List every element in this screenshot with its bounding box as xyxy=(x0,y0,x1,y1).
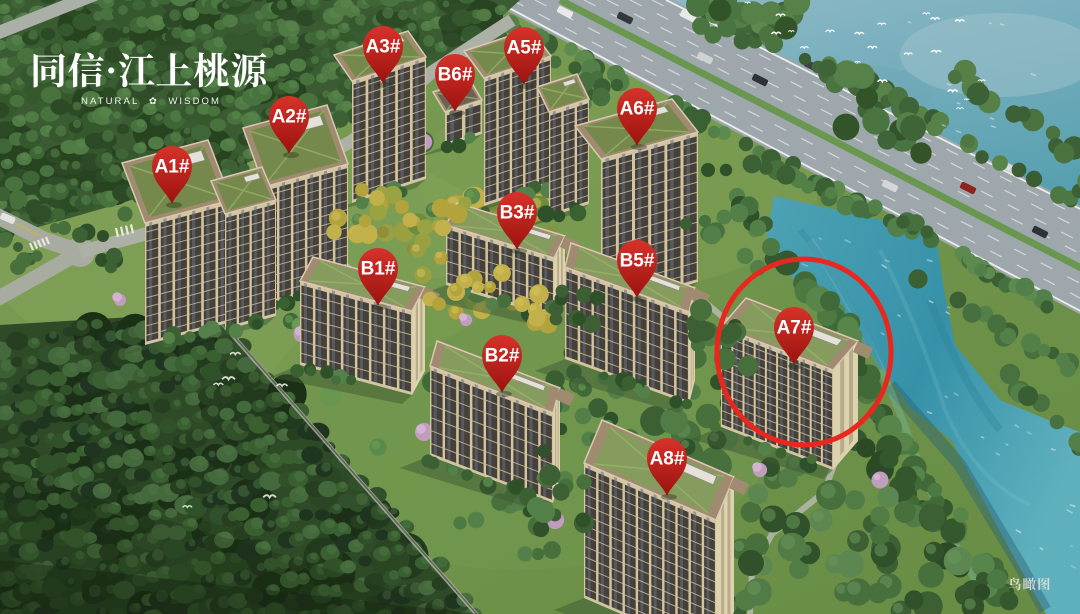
svg-text:B5#: B5# xyxy=(620,251,655,272)
svg-text:A5#: A5# xyxy=(507,38,542,59)
svg-text:B2#: B2# xyxy=(485,346,520,367)
svg-text:B6#: B6# xyxy=(438,65,473,86)
svg-text:A1#: A1# xyxy=(155,157,190,178)
svg-text:A8#: A8# xyxy=(650,449,685,470)
svg-text:A6#: A6# xyxy=(620,99,655,120)
svg-text:B1#: B1# xyxy=(361,259,396,280)
svg-text:A7#: A7# xyxy=(777,318,812,339)
svg-text:A2#: A2# xyxy=(272,107,307,128)
svg-text:A3#: A3# xyxy=(366,37,401,58)
svg-text:B3#: B3# xyxy=(500,203,535,224)
